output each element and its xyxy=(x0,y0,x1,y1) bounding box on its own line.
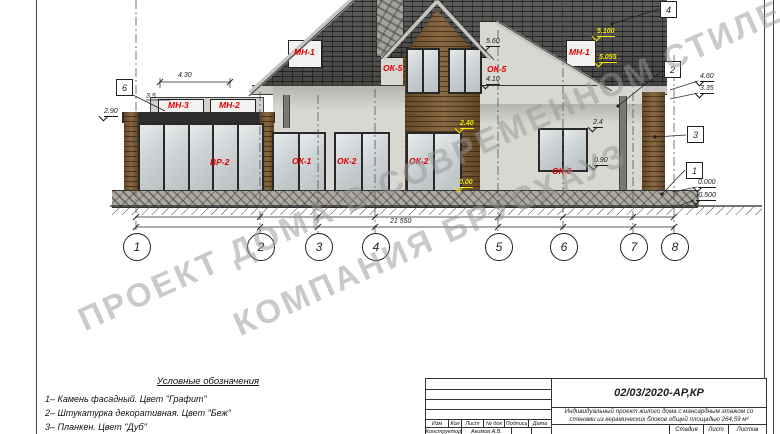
dimension-label: 5.60 xyxy=(486,38,500,47)
document-number: 02/03/2020-АР,КР xyxy=(551,379,766,407)
dimension-label: -0.500 xyxy=(696,192,716,201)
facade-element-label: ОК-1 xyxy=(292,157,311,166)
axis-bubble: 2 xyxy=(247,233,275,261)
material-callout: 4 xyxy=(660,1,677,18)
facade-element-label: МН-1 xyxy=(569,48,590,57)
facade-element-label: ВР-2 xyxy=(210,158,229,167)
dimension-label: 4.60 xyxy=(700,73,714,82)
dimension-label: 3.5 xyxy=(146,93,156,100)
facade-element-label: ОК-5 xyxy=(383,64,402,73)
axis-bubble: 3 xyxy=(305,233,333,261)
title-block-bottom-cell xyxy=(551,424,669,434)
drawing-sheet: МН-3МН-2МН-1ОК-5ОК-5МН-1ВР-2ОК-1ОК-2ОК-2… xyxy=(0,0,780,434)
dimension-label: 2.90 xyxy=(104,108,118,117)
axis-bubble: 1 xyxy=(123,233,151,261)
facade-element-label: ОК-2 xyxy=(409,157,428,166)
title-block-role: Конструктор xyxy=(426,427,461,434)
material-callout: 6 xyxy=(116,79,133,96)
title-block-header-cell: Изм xyxy=(426,419,448,427)
material-callout: 1 xyxy=(686,162,703,179)
material-callout: 3 xyxy=(687,126,704,143)
facade-element-label: ОК-3 xyxy=(552,167,571,176)
title-block-row xyxy=(426,379,551,389)
dimension-label: 4.30 xyxy=(178,72,192,79)
sheets-label: Листов xyxy=(728,424,766,434)
title-block-sign-cell xyxy=(511,427,531,434)
title-block-date-cell xyxy=(531,427,551,434)
facade-element-label: ОК-2 xyxy=(337,157,356,166)
elevation-mark-yellow: 2.40 xyxy=(460,120,474,129)
facade-element-label: МН-3 xyxy=(168,101,189,110)
title-block-header-cell: Дата xyxy=(528,419,551,427)
facade-element-label: МН-2 xyxy=(219,101,240,110)
elevation-mark-yellow: 0.00 xyxy=(459,179,473,188)
dimension-label: 3.35 xyxy=(700,85,714,94)
elevation-mark-yellow: 5.100 xyxy=(597,28,615,37)
title-block-name: Акимов А.В. xyxy=(461,427,511,434)
elevation-mark-yellow: 5.055 xyxy=(599,54,617,63)
title-block-header-cell: Кол xyxy=(448,419,461,427)
dimension-label: 0.000 xyxy=(698,179,716,188)
sheet-label: Лист xyxy=(703,424,728,434)
annotation-layer: МН-3МН-2МН-1ОК-5ОК-5МН-1ВР-2ОК-1ОК-2ОК-2… xyxy=(0,0,780,434)
dimension-label: 2.4 xyxy=(593,119,603,128)
title-block-header-cell: № док xyxy=(483,419,504,427)
title-block-header-cell: Подпись xyxy=(504,419,528,427)
stage-label: Стадия xyxy=(669,424,703,434)
axis-bubble: 4 xyxy=(362,233,390,261)
dimension-label: 4.10 xyxy=(486,76,500,85)
title-block-header-cell: Лист xyxy=(461,419,483,427)
axis-bubble: 7 xyxy=(620,233,648,261)
title-block-row xyxy=(426,389,551,399)
title-block-row xyxy=(426,409,551,419)
facade-element-label: ОК-5 xyxy=(487,65,506,74)
material-callout: 2 xyxy=(664,61,681,78)
axis-bubble: 8 xyxy=(661,233,689,261)
dimension-label: 21 550 xyxy=(390,218,411,225)
axis-bubble: 6 xyxy=(550,233,578,261)
title-block-row xyxy=(426,399,551,409)
project-description: Индивидуальный проект жилого дома с манс… xyxy=(551,407,766,424)
axis-bubble: 5 xyxy=(485,233,513,261)
facade-element-label: МН-1 xyxy=(294,48,315,57)
dimension-label: 0.90 xyxy=(594,157,608,166)
title-block: Конструктор Акимов А.В. 02/03/2020-АР,КР… xyxy=(425,378,767,434)
